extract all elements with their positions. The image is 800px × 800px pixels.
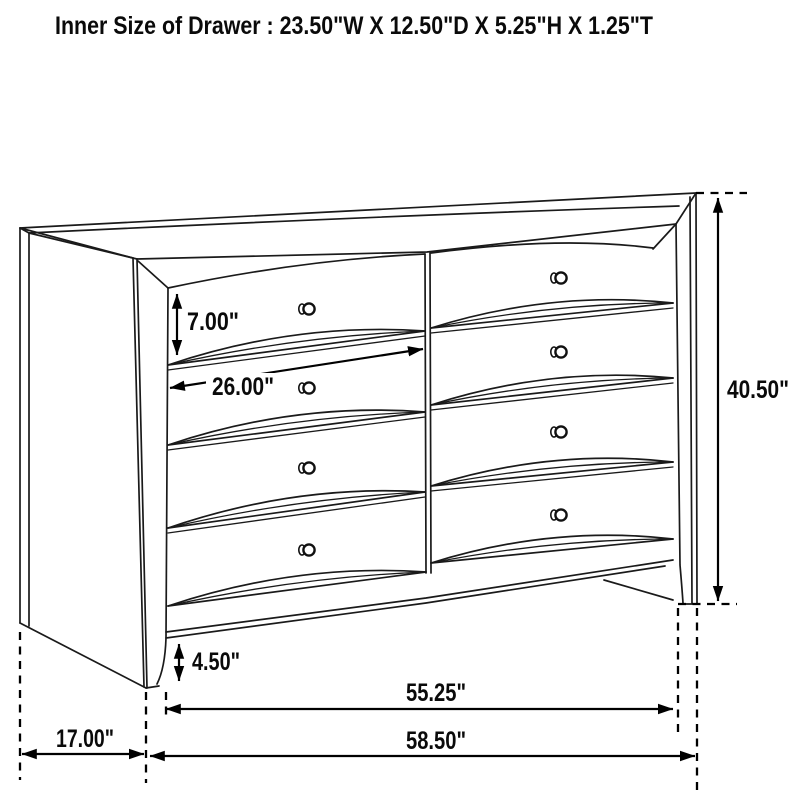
diagram-svg: Inner Size of Drawer : 23.50"W X 12.50"D… <box>0 0 800 800</box>
knob-icon <box>299 303 315 314</box>
dim-label-base-height: 4.50" <box>192 648 240 676</box>
dresser-top <box>20 193 696 259</box>
drawer-top-curves <box>168 243 653 288</box>
knob-icon <box>551 426 567 437</box>
knob-icon <box>299 462 315 473</box>
dresser-drawing <box>20 193 697 688</box>
dimension-base-height: 4.50" <box>179 644 240 681</box>
dim-label-drawer-front-height: 7.00" <box>187 308 239 336</box>
knob-icon <box>551 509 567 520</box>
page-title: Inner Size of Drawer : 23.50"W X 12.50"D… <box>55 12 653 40</box>
knob-icon <box>551 272 567 283</box>
extension-lines <box>20 193 747 792</box>
knob-icon <box>299 382 315 393</box>
dresser-dimension-diagram: Inner Size of Drawer : 23.50"W X 12.50"D… <box>0 0 800 800</box>
knob-icon <box>299 544 315 555</box>
dim-label-overall-width: 58.50" <box>406 727 466 755</box>
side-panel <box>20 228 146 688</box>
dim-label-inner-width: 55.25" <box>406 679 466 707</box>
dimension-drawer-front-height: 7.00" <box>177 294 239 355</box>
dim-label-overall-height: 40.50" <box>727 376 789 404</box>
knob-icon <box>551 346 567 357</box>
dimension-overall-width: 58.50" <box>150 727 695 756</box>
dimension-side-depth: 17.00" <box>22 725 144 754</box>
dim-label-side-depth: 17.00" <box>56 725 114 753</box>
dimension-inner-width: 55.25" <box>166 679 673 709</box>
face-frame <box>137 193 697 688</box>
dim-label-drawer-width: 26.00" <box>212 373 274 401</box>
left-column-drawer-gaps <box>168 329 426 606</box>
right-column-drawer-gaps <box>431 300 673 563</box>
drawer-knobs <box>299 272 567 555</box>
dimension-overall-height: 40.50" <box>718 198 789 601</box>
